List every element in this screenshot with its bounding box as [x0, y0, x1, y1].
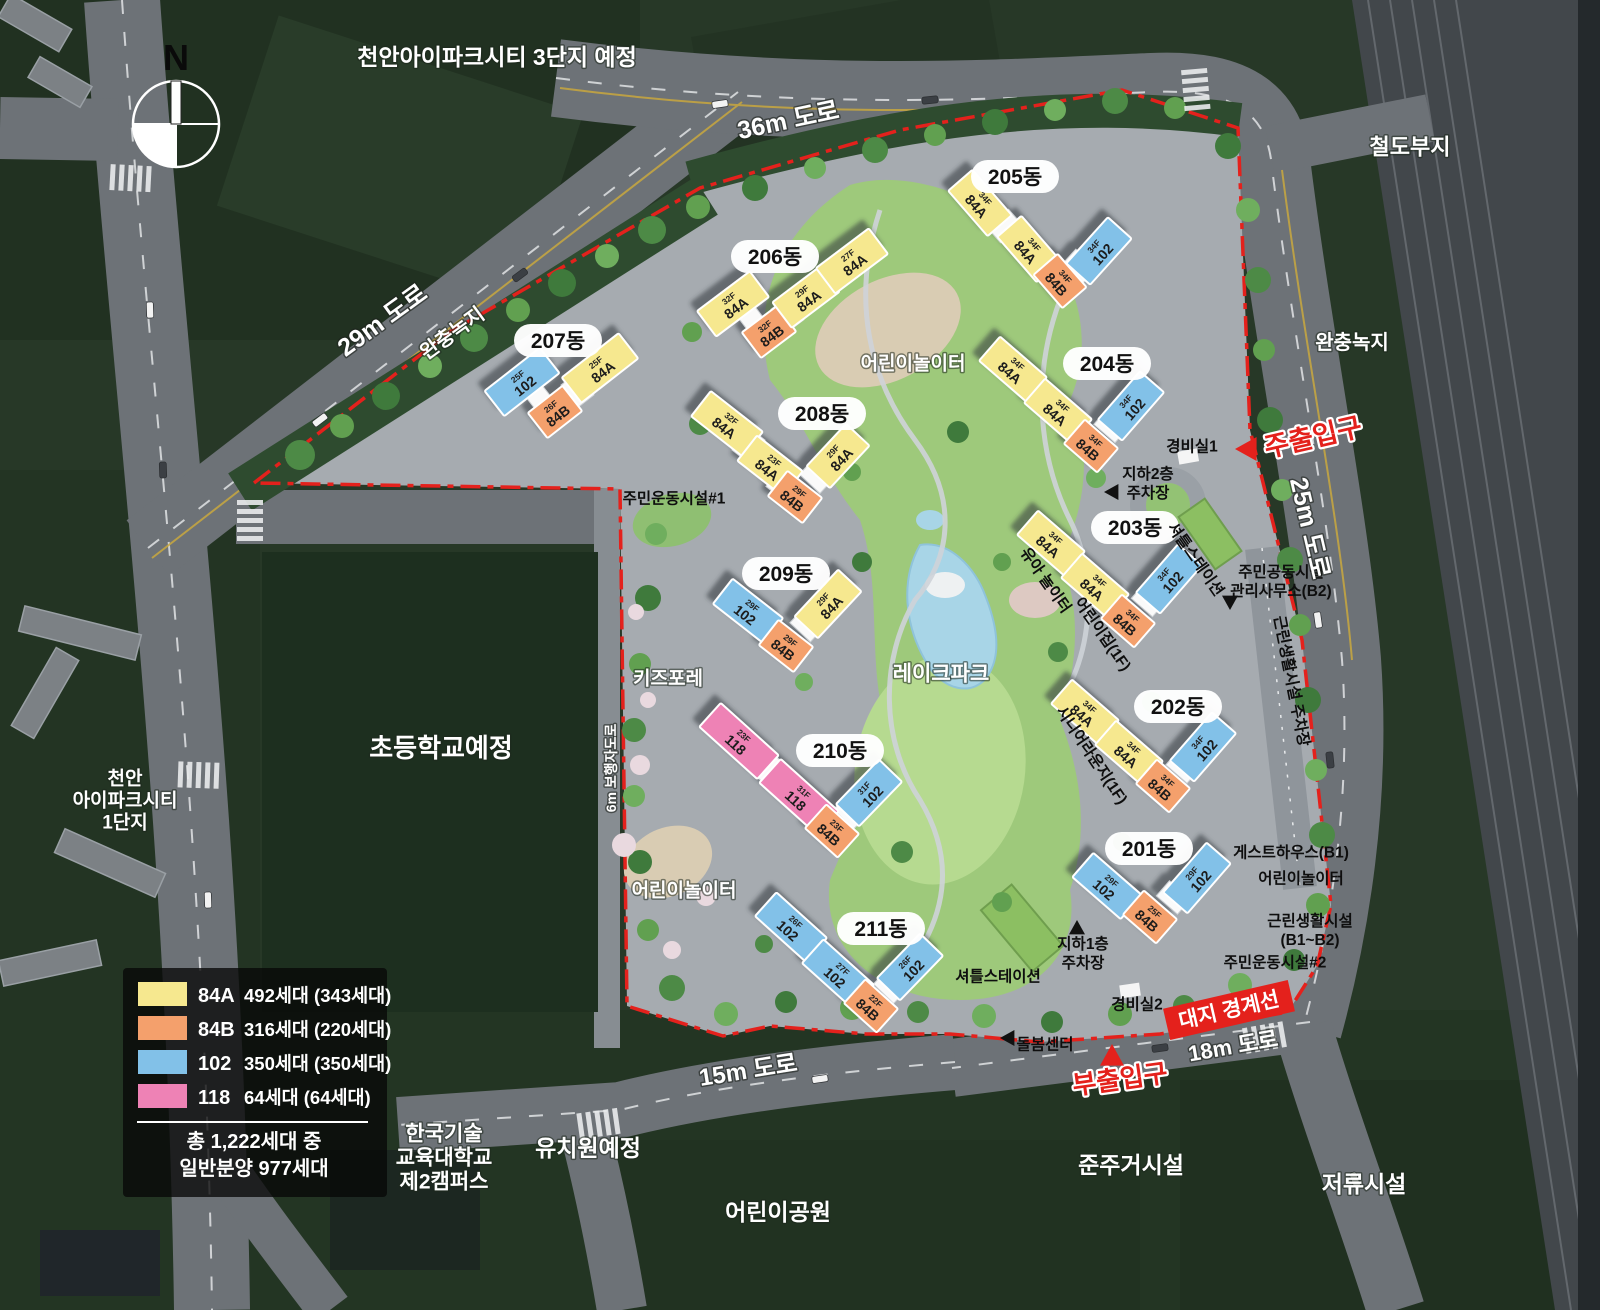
area-label-text: 제2캠퍼스 — [400, 1170, 489, 1193]
area-label: 완충녹지 — [1315, 331, 1389, 354]
badge-text: 203동 — [1108, 517, 1162, 540]
area-label: 천안아이파크시티 3단지 예정 — [357, 44, 637, 70]
building-name-badge: 208동 — [778, 397, 866, 430]
area-label: 키즈포레 — [633, 668, 703, 690]
facility-label-text: (B1~B2) — [1280, 932, 1339, 949]
legend-swatch-84B — [138, 1016, 187, 1040]
facility-label-text: 주차장 — [1127, 484, 1171, 502]
legend-count: 316세대 (220세대) — [244, 1019, 391, 1040]
badge-text: 208동 — [795, 403, 849, 426]
railway-edge-strip — [1578, 0, 1600, 1310]
area-label-text: 한국기술 — [405, 1122, 482, 1145]
facility-label: 주민운동시설#2 — [1224, 953, 1327, 971]
badge-text: 205동 — [988, 166, 1042, 189]
facility-label: 돌봄센터 — [1016, 1035, 1073, 1053]
area-label: 준주거시설 — [1078, 1152, 1184, 1178]
area-label: 어린이공원 — [725, 1199, 831, 1225]
facility-label-text: 주차장 — [1062, 954, 1106, 972]
facility-label: 게스트하우스(B1) — [1233, 842, 1349, 861]
area-label-text: 준주거시설 — [1078, 1152, 1184, 1178]
site-plan-map: N 29F10225F84B29F102201동34F84A34F84A34F8… — [0, 0, 1600, 1310]
building-name-badge: 201동 — [1105, 832, 1193, 865]
badge-text: 202동 — [1151, 696, 1205, 719]
area-label-text: 레이크파크 — [893, 662, 990, 685]
facility-label-text: 게스트하우스(B1) — [1233, 842, 1349, 861]
badge-text: 201동 — [1122, 838, 1176, 861]
legend-code: 118 — [198, 1087, 230, 1109]
area-label: 레이크파크 — [893, 662, 990, 685]
building-name-badge: 204동 — [1063, 347, 1151, 380]
building-name-badge: 211동 — [837, 912, 925, 945]
area-label-text: 철도부지 — [1370, 135, 1451, 160]
area-label-text: 어린이놀이터 — [861, 353, 966, 375]
area-label-text: 천안아이파크시티 3단지 예정 — [357, 44, 637, 70]
facility-label-text: 경비실2 — [1111, 995, 1162, 1013]
badge-text: 204동 — [1080, 353, 1134, 376]
building-name-badge: 202동 — [1134, 690, 1222, 723]
facility-label-text: 지하1층 — [1057, 935, 1108, 953]
compass-needle — [171, 81, 181, 124]
legend-code: 84B — [198, 1019, 235, 1041]
area-label-text: 키즈포레 — [633, 668, 703, 690]
area-label-text: 아이파크시티 — [73, 790, 178, 812]
badge-text: 211동 — [854, 918, 907, 941]
badge-text: 209동 — [759, 563, 813, 586]
area-label-text: 천안 — [108, 768, 143, 790]
area-label-text: 교육대학교 — [396, 1146, 493, 1169]
building-name-badge: 207동 — [514, 324, 602, 357]
badge-text: 207동 — [531, 330, 585, 353]
area-label-text: 어린이놀이터 — [632, 880, 737, 902]
badge-text: 206동 — [748, 246, 802, 269]
area-label: 철도부지 — [1370, 135, 1451, 160]
area-label: 어린이놀이터 — [632, 880, 737, 902]
building-name-badge: 209동 — [742, 557, 830, 590]
area-label: 한국기술교육대학교제2캠퍼스 — [396, 1122, 493, 1193]
area-label-text: 1단지 — [102, 812, 148, 834]
area-label: 어린이놀이터 — [861, 353, 966, 375]
legend-total-line1: 총 1,222세대 중 — [187, 1130, 322, 1153]
road-label: 6m 보행자도로 — [603, 724, 619, 813]
road-topleft-stub — [0, 128, 118, 130]
legend: 84A492세대 (343세대)84B316세대 (220세대)102350세대… — [123, 968, 391, 1197]
facility-label-text: 지하2층 — [1122, 465, 1173, 483]
legend-count: 492세대 (343세대) — [244, 985, 391, 1006]
site-plan-page: N 29F10225F84B29F102201동34F84A34F84A34F8… — [0, 0, 1600, 1310]
area-label: 초등학교예정 — [369, 733, 513, 763]
area-label: 유치원예정 — [535, 1135, 641, 1161]
facility-label-text: 어린이놀이터 — [1258, 869, 1344, 887]
facility-label-text: 주민운동시설#1 — [623, 489, 726, 507]
legend-code: 84A — [198, 985, 235, 1007]
area-label-text: 저류시설 — [1322, 1171, 1407, 1197]
legend-count: 64세대 (64세대) — [244, 1087, 371, 1108]
facility-label: 경비실1 — [1166, 437, 1218, 455]
facility-label: 어린이놀이터 — [1258, 869, 1344, 887]
area-label: 저류시설 — [1322, 1171, 1407, 1197]
facility-label: 주민운동시설#1 — [623, 489, 726, 507]
facility-label-text: 돌봄센터 — [1016, 1035, 1073, 1053]
legend-swatch-102 — [138, 1050, 187, 1074]
area-label-text: 완충녹지 — [1315, 331, 1389, 354]
facility-label-text: 주민운동시설#2 — [1224, 953, 1327, 971]
facility-label-text: 근린생활시설 — [1267, 911, 1353, 930]
legend-swatch-118 — [138, 1084, 187, 1108]
building-name-badge: 205동 — [971, 160, 1059, 193]
area-label-text: 어린이공원 — [725, 1199, 831, 1225]
facility-label: 경비실2 — [1111, 995, 1162, 1013]
road-label-text: 6m 보행자도로 — [603, 724, 619, 813]
facility-label-text: 관리사무소(B2) — [1230, 582, 1331, 600]
compass-n-label: N — [163, 37, 189, 78]
facility-label-text: 셔틀스테이션 — [955, 967, 1041, 985]
school-plot — [262, 552, 598, 1012]
badge-text: 210동 — [813, 740, 867, 763]
facility-label-text: 경비실1 — [1166, 437, 1218, 455]
building-name-badge: 210동 — [796, 734, 884, 767]
legend-count: 350세대 (350세대) — [244, 1053, 391, 1074]
area-label-text: 유치원예정 — [535, 1135, 641, 1161]
building-name-badge: 206동 — [731, 240, 819, 273]
legend-code: 102 — [198, 1053, 231, 1075]
legend-total-line2: 일반분양 977세대 — [179, 1157, 328, 1180]
facility-label: 셔틀스테이션 — [955, 967, 1041, 985]
legend-swatch-84A — [138, 982, 187, 1006]
area-label-text: 초등학교예정 — [369, 733, 513, 763]
pond — [916, 510, 944, 530]
